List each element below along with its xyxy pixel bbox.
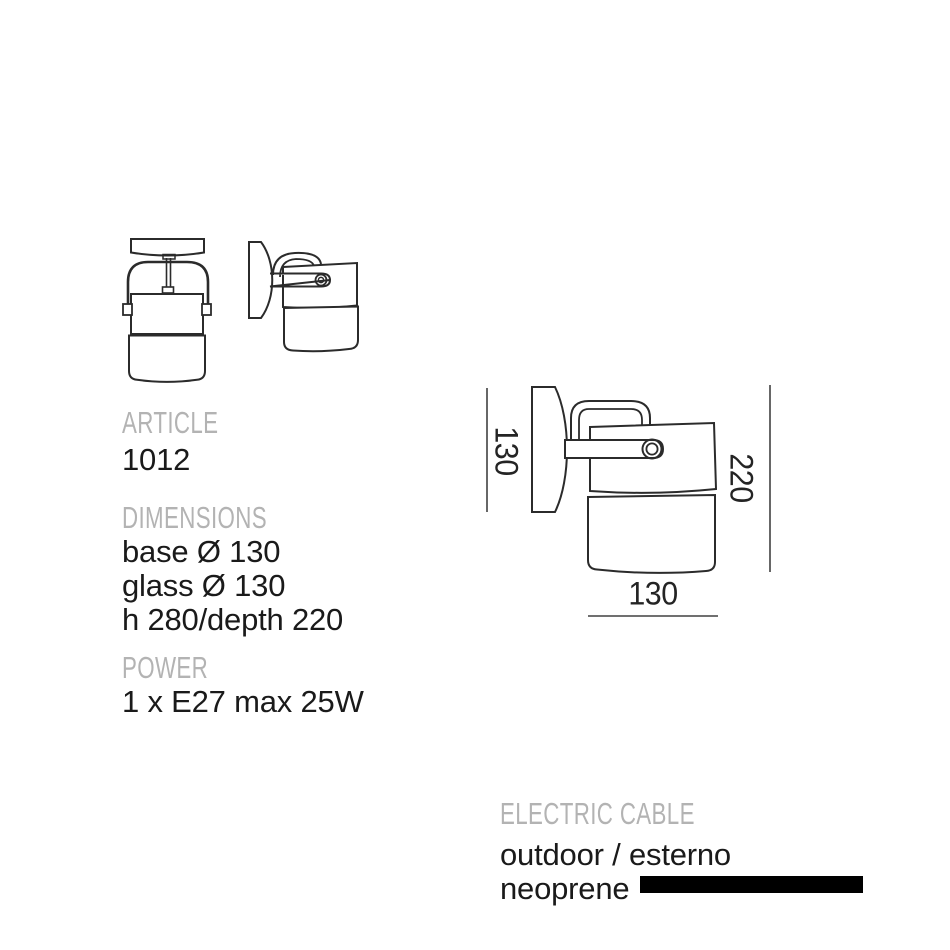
specs-panel: ARTICLE 1012 DIMENSIONS base Ø 130 glass… xyxy=(122,406,364,719)
lamp-body xyxy=(131,294,203,334)
wall-plate xyxy=(532,387,567,512)
article-value: 1012 xyxy=(122,443,364,477)
dim-label-plate-height: 130 xyxy=(488,426,525,475)
wall-plate xyxy=(249,242,272,318)
mounting-bracket xyxy=(565,440,663,458)
stem-foot xyxy=(163,287,174,293)
dimension-line-glass: glass Ø 130 xyxy=(122,569,364,603)
dimension-line-base: base Ø 130 xyxy=(122,535,364,569)
plate-tab xyxy=(163,255,175,260)
power-heading: POWER xyxy=(122,651,296,685)
article-heading: ARTICLE xyxy=(122,406,296,440)
side-knob xyxy=(123,304,132,315)
dim-label-width: 130 xyxy=(628,576,677,613)
glass-diffuser xyxy=(588,495,715,573)
cable-location: outdoor / esterno xyxy=(500,838,771,872)
dimensions-heading: DIMENSIONS xyxy=(122,501,296,535)
side-view-drawing xyxy=(240,228,380,393)
cable-heading: ELECTRIC CABLE xyxy=(500,797,695,831)
power-value: 1 x E27 max 25W xyxy=(122,685,364,719)
ceiling-plate xyxy=(131,239,204,256)
dim-label-depth: 220 xyxy=(723,453,760,502)
side-knob xyxy=(202,304,211,315)
glass-diffuser xyxy=(129,336,205,382)
dimension-line-height: h 280/depth 220 xyxy=(122,603,364,637)
spec-sheet-page: ARTICLE 1012 DIMENSIONS base Ø 130 glass… xyxy=(0,0,950,950)
front-view-drawing xyxy=(115,225,235,390)
neoprene-color-swatch xyxy=(640,876,863,893)
glass-diffuser xyxy=(284,307,358,352)
